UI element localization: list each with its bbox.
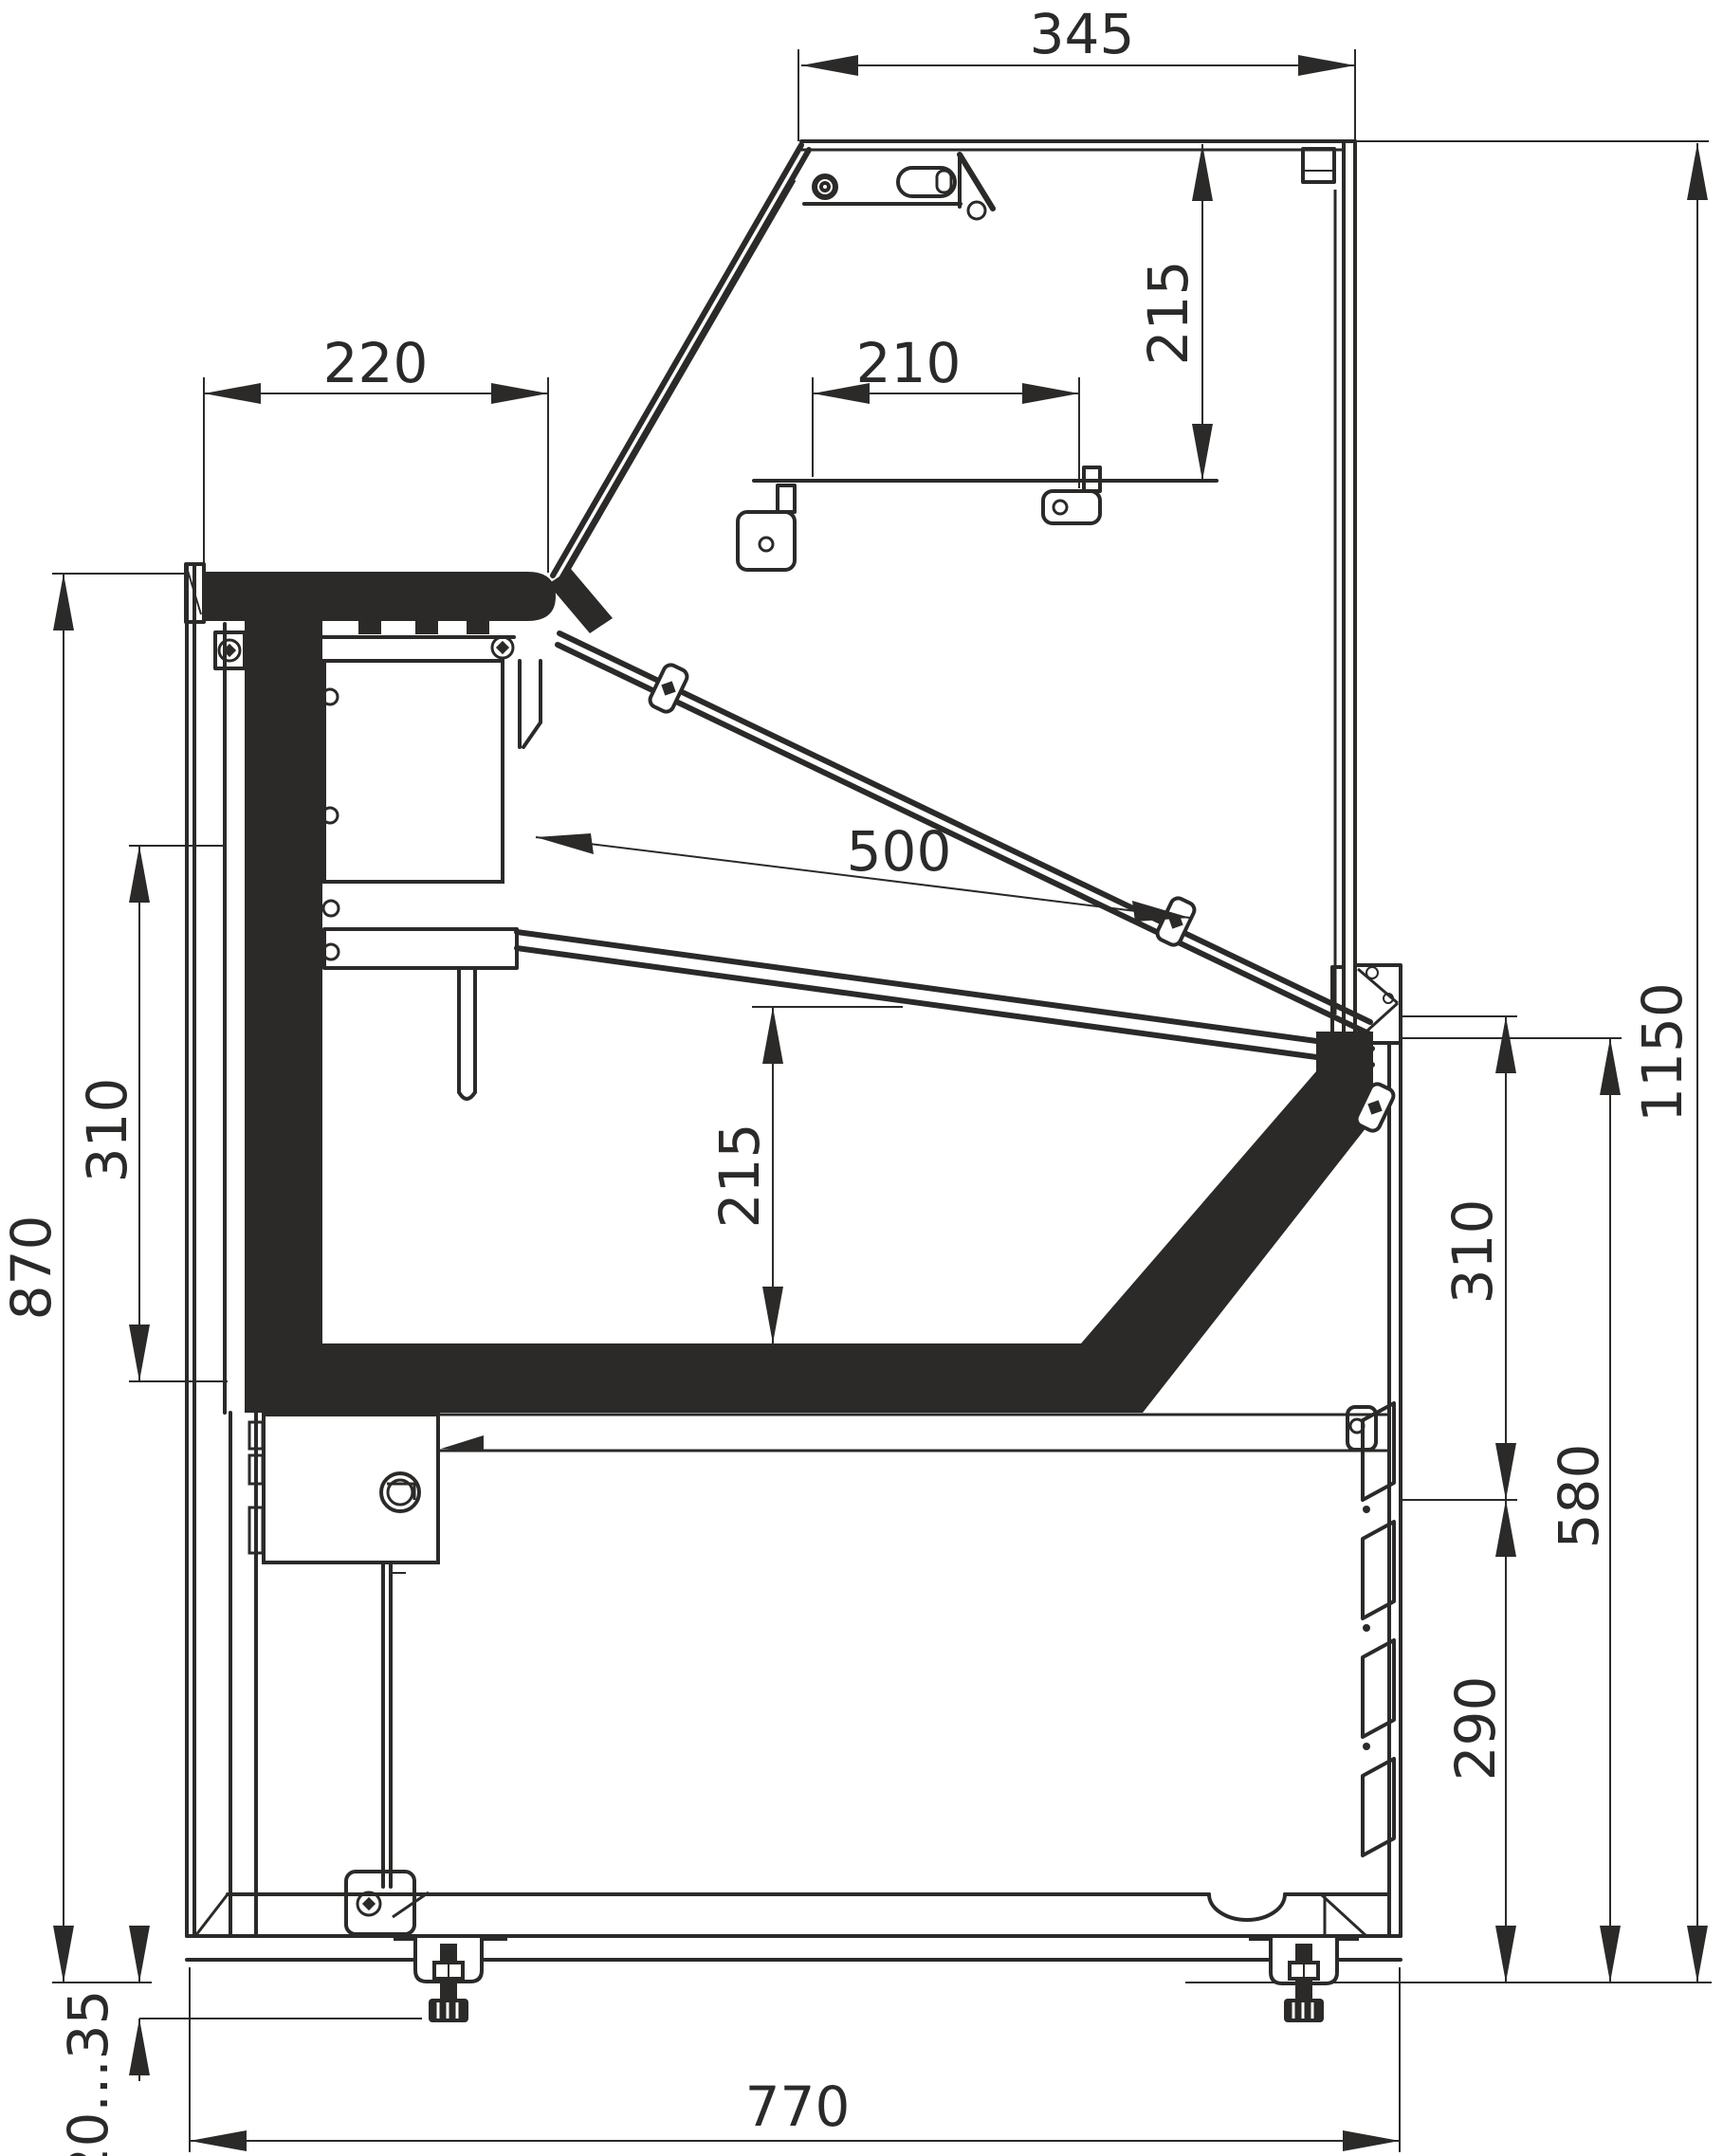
rear-glass-holder	[1303, 149, 1334, 182]
evaporator-housing	[321, 637, 541, 1099]
dim-label-215-top: 215	[1136, 261, 1201, 366]
display-deck	[517, 932, 1372, 1065]
dim-label-770: 770	[745, 2074, 851, 2139]
dim-label-310-right: 310	[1440, 1199, 1505, 1305]
adjustable-foot-right	[1249, 1939, 1359, 2022]
dim-label-580: 580	[1547, 1444, 1611, 1549]
dim-label-310-left: 310	[75, 1078, 139, 1183]
dim-label-345: 345	[1030, 2, 1135, 66]
worktop-band	[202, 572, 556, 621]
dim-label-500: 500	[847, 819, 952, 884]
canopy	[801, 141, 1355, 219]
drawing-canvas: 345 220 210 500 770 215 870 310 215 1150…	[0, 0, 1723, 2156]
housing-base-plate	[324, 929, 517, 968]
glass-pivot-block	[548, 569, 613, 633]
rear-slope-band	[1081, 1032, 1373, 1413]
front-glass-closed	[558, 633, 1370, 1033]
dim-label-870: 870	[0, 1215, 64, 1321]
adjustable-foot-left	[394, 1939, 507, 2022]
rear-wall	[1335, 141, 1355, 1021]
bracket-screw-icon	[968, 202, 985, 219]
dim-label-215-mid: 215	[707, 1124, 772, 1229]
dim-label-210: 210	[856, 331, 962, 395]
dim-label-foot-range: 20...35	[56, 1990, 120, 2156]
shelf-bracket-left	[738, 512, 795, 570]
shelf	[738, 467, 1217, 570]
dim-label-1150: 1150	[1630, 982, 1695, 1123]
lower-cabinet	[187, 1415, 1401, 1960]
section-drawing: 345 220 210 500 770 215 870 310 215 1150…	[0, 0, 1723, 2156]
front-column	[245, 621, 322, 1413]
dim-label-220: 220	[323, 331, 429, 395]
bottom-band	[245, 1343, 1143, 1413]
shelf-bracket-right	[1043, 491, 1100, 523]
dim-label-290: 290	[1443, 1676, 1508, 1781]
